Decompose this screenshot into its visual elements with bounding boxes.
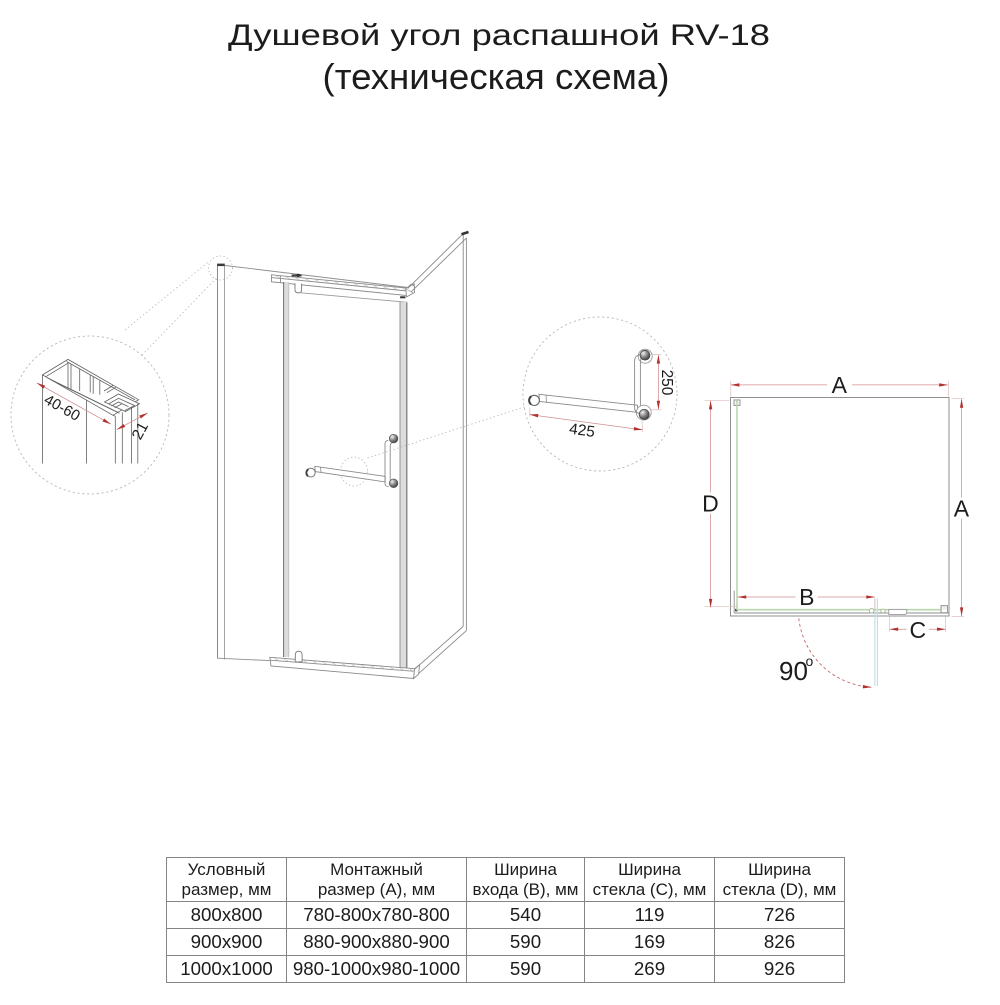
svg-text:C: C (909, 617, 926, 643)
svg-text:21: 21 (129, 419, 152, 442)
svg-text:90: 90 (779, 656, 808, 686)
svg-text:425: 425 (568, 421, 596, 441)
svg-text:D: D (702, 490, 719, 516)
svg-text:Душевой угол распашной RV-18: Душевой угол распашной RV-18 (228, 19, 770, 52)
svg-text:(техническая схема): (техническая схема) (323, 56, 670, 97)
svg-text:A: A (954, 496, 970, 522)
svg-text:250: 250 (658, 370, 675, 396)
svg-text:A: A (832, 372, 848, 398)
svg-text:o: o (806, 653, 814, 669)
svg-text:40-60: 40-60 (41, 391, 83, 425)
svg-text:B: B (799, 584, 814, 610)
